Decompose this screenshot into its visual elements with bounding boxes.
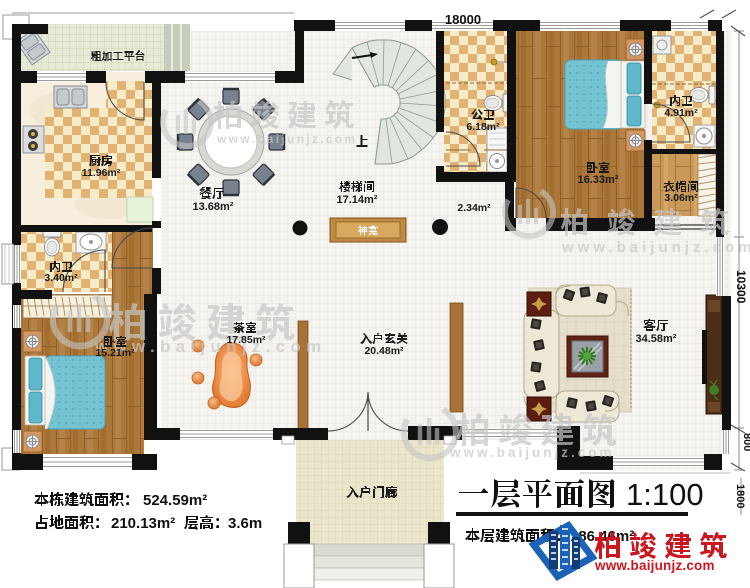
svg-text:11.96m²: 11.96m² (82, 167, 121, 179)
svg-text:3.06m²: 3.06m² (664, 192, 698, 204)
svg-text:3.40m²: 3.40m² (44, 272, 78, 284)
svg-text:www.baijunjz.com: www.baijunjz.com (449, 445, 615, 460)
svg-text:2.34m²: 2.34m² (457, 202, 491, 214)
svg-text:34.58m²: 34.58m² (636, 333, 677, 345)
svg-text:www.baijunjz.com: www.baijunjz.com (561, 239, 750, 256)
svg-text:800: 800 (741, 433, 750, 451)
svg-text:1:100: 1:100 (626, 477, 704, 512)
svg-text:3.6m: 3.6m (228, 515, 262, 532)
svg-text:210.13m²: 210.13m² (111, 515, 175, 532)
svg-text:20.48m²: 20.48m² (364, 345, 404, 357)
svg-text:4.91m²: 4.91m² (664, 107, 698, 119)
svg-text:www.baijunjz.com: www.baijunjz.com (216, 132, 357, 146)
svg-text:18000: 18000 (445, 12, 481, 27)
svg-text:1800: 1800 (734, 484, 746, 508)
svg-text:15.21m²: 15.21m² (95, 347, 135, 359)
svg-text:16.33m²: 16.33m² (578, 174, 619, 186)
svg-text:524.59m²: 524.59m² (143, 492, 207, 509)
svg-text:www.baijunjz.com: www.baijunjz.com (594, 558, 715, 573)
svg-text:17.85m²: 17.85m² (226, 334, 266, 346)
svg-text:6.18m²: 6.18m² (466, 121, 500, 133)
svg-text:13.68m²: 13.68m² (193, 201, 234, 213)
svg-text:10300: 10300 (734, 270, 748, 304)
svg-text:17.14m²: 17.14m² (337, 194, 378, 206)
